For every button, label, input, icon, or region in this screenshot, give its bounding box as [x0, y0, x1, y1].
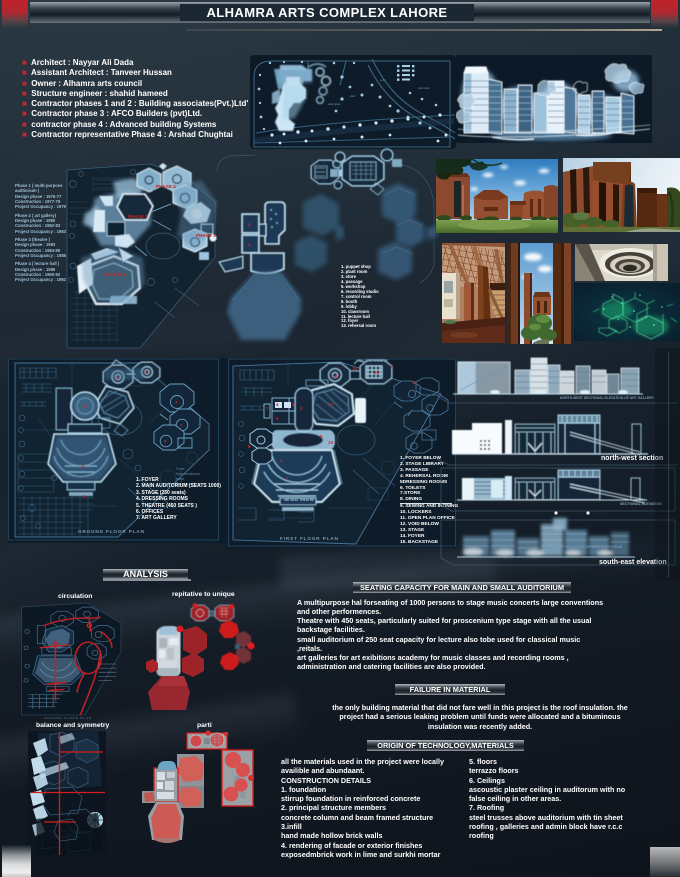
svg-text:12: 12 [328, 402, 334, 407]
svg-text:14: 14 [352, 366, 358, 371]
svg-text:GROUND FLOOR PLAN: GROUND FLOOR PLAN [44, 716, 92, 720]
svg-text:250 SEAT THEATRE: 250 SEAT THEATRE [358, 359, 388, 363]
svg-text:15: 15 [374, 370, 380, 375]
svg-text:Foyer: Foyer [176, 467, 186, 471]
svg-text:11: 11 [412, 380, 417, 385]
svg-text:13: 13 [332, 374, 338, 379]
svg-text:open lawn: open lawn [418, 86, 430, 90]
svg-text:entry: entry [380, 78, 386, 82]
svg-text:wide green: wide green [328, 102, 341, 106]
svg-text:park: park [350, 94, 356, 98]
svg-text:450 SEAT THEATRE: 450 SEAT THEATRE [284, 498, 314, 502]
svg-text:10: 10 [328, 440, 334, 445]
svg-text:Main auditorium: Main auditorium [176, 472, 200, 476]
